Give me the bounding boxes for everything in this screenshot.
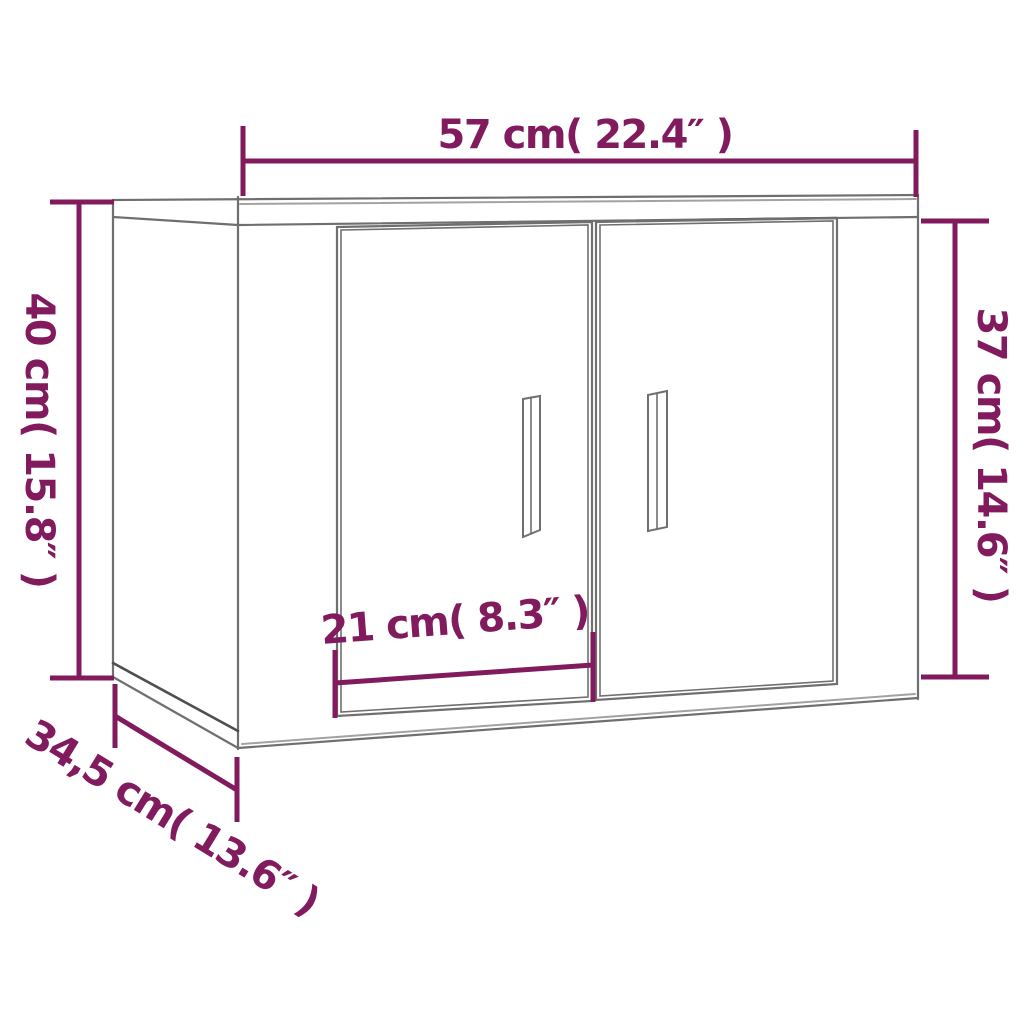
right-height-dimension-label: 37 cm( 14.6″ ) (968, 308, 1014, 603)
left-height-dimension-label: 40 cm( 15.8″ ) (16, 293, 62, 588)
diagram-canvas: 57 cm( 22.4″ ) 40 cm( 15.8″ ) 37 cm( 14.… (0, 0, 1024, 1024)
dimension-diagram: 57 cm( 22.4″ ) 40 cm( 15.8″ ) 37 cm( 14.… (0, 0, 1024, 1024)
width-dimension-label: 57 cm( 22.4″ ) (438, 112, 733, 158)
